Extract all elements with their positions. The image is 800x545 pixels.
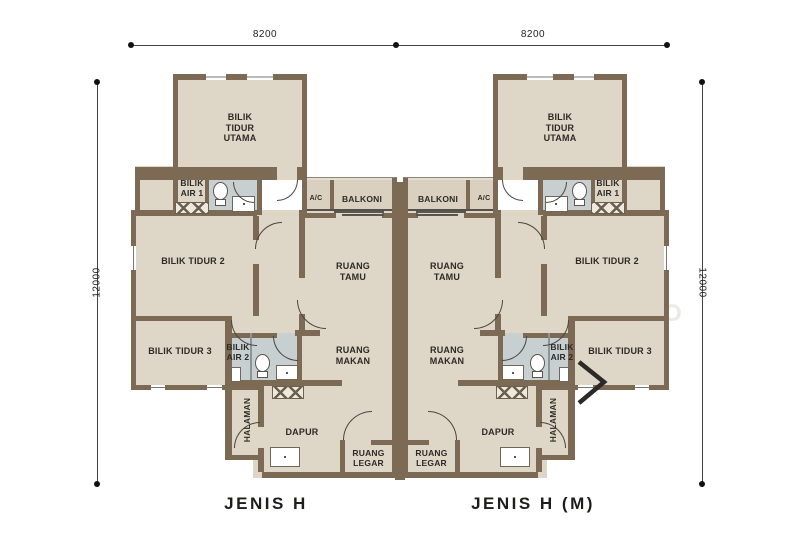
wall — [131, 210, 136, 390]
wall — [258, 460, 264, 472]
wall — [302, 74, 307, 213]
dimension-dot — [128, 42, 134, 48]
kitchen-sink-icon — [500, 447, 530, 467]
toilet-tank-icon — [257, 371, 268, 378]
room-label-master-bedroom: BILIK TIDUR UTAMA — [510, 112, 610, 144]
vent-hatch — [272, 386, 304, 399]
wall — [536, 385, 542, 427]
wall — [493, 74, 498, 213]
wall — [131, 316, 231, 321]
room-label-master-bedroom: BILIK TIDUR UTAMA — [190, 112, 290, 144]
toilet-icon — [530, 354, 545, 372]
dimension-width-left: 8200 — [215, 29, 315, 40]
room-label-yard: HALAMAN — [548, 390, 558, 450]
wall — [173, 74, 178, 167]
unit-caption-left: JENIS H — [166, 494, 366, 514]
wall — [538, 455, 575, 460]
room-label-bathroom1: BILIK AIR 1 — [175, 178, 209, 198]
top-dimension-line — [131, 45, 667, 46]
entrance-arrow-icon — [576, 359, 608, 406]
wall — [392, 178, 397, 478]
wall — [536, 460, 542, 472]
toilet-icon — [255, 354, 270, 372]
door-arc — [502, 180, 523, 201]
sink-icon — [276, 365, 298, 380]
room-label-foyer: RUANG LEGAR — [403, 448, 460, 468]
room-label-living-room: RUANG TAMU — [303, 261, 403, 282]
vent-hatch — [175, 202, 209, 214]
kitchen-sink-icon — [270, 447, 300, 467]
wall — [135, 167, 140, 215]
room-label-yard: HALAMAN — [242, 390, 252, 450]
wall — [257, 180, 262, 215]
dimension-dot — [699, 79, 705, 85]
wall — [660, 167, 665, 215]
room-label-balcony: BALKONI — [406, 194, 470, 204]
room-label-kitchen: DAPUR — [458, 427, 538, 438]
wall — [297, 167, 307, 180]
window — [527, 74, 553, 80]
room-label-kitchen: DAPUR — [262, 427, 342, 438]
room-label-living-room: RUANG TAMU — [397, 261, 497, 282]
wall — [569, 316, 669, 321]
dimension-dot — [94, 481, 100, 487]
toilet-icon — [572, 182, 587, 200]
toilet-tank-icon — [574, 199, 585, 206]
sliding-door — [416, 211, 466, 213]
toilet-icon — [213, 182, 228, 200]
vent-hatch — [496, 386, 528, 399]
dimension-height-right: 12000 — [697, 233, 708, 333]
wall — [258, 385, 264, 427]
wall — [664, 210, 669, 390]
room-label-foyer: RUANG LEGAR — [340, 448, 397, 468]
floor-plan-unit-left: BILIK TIDUR UTAMA BILIK AIR 1 BILIK TIDU… — [131, 70, 397, 480]
sliding-door — [334, 211, 384, 213]
room-label-ac: A/C — [470, 195, 498, 203]
door-arc — [277, 180, 298, 201]
unit-caption-right: JENIS H (M) — [433, 494, 633, 514]
dimension-width-right: 8200 — [483, 29, 583, 40]
floor-plan-unit-right: BILIK TIDUR UTAMA BILIK AIR 1 BILIK TIDU… — [403, 70, 669, 480]
dimension-height-left: 12000 — [92, 233, 103, 333]
room-label-bathroom2: BILIK AIR 2 — [224, 342, 252, 362]
room-label-dining-room: RUANG MAKAN — [397, 345, 497, 366]
wall — [253, 264, 259, 316]
water-heater-icon — [559, 367, 569, 382]
window — [664, 246, 669, 270]
window — [206, 74, 226, 80]
window — [131, 246, 136, 270]
window — [247, 74, 273, 80]
wall — [173, 74, 307, 80]
window — [574, 74, 594, 80]
room-label-balcony: BALKONI — [330, 194, 394, 204]
toilet-tank-icon — [215, 199, 226, 206]
water-heater-icon — [231, 367, 241, 382]
wall — [493, 74, 627, 80]
room-label-bathroom2: BILIK AIR 2 — [548, 342, 576, 362]
room-label-bedroom3: BILIK TIDUR 3 — [131, 346, 229, 357]
vent-hatch — [591, 202, 625, 214]
wall — [262, 472, 397, 478]
toilet-tank-icon — [532, 371, 543, 378]
wall — [302, 213, 336, 218]
dimension-dot — [94, 79, 100, 85]
dimension-dot — [664, 42, 670, 48]
dimension-dot — [699, 481, 705, 487]
room-label-ac: A/C — [302, 195, 330, 203]
wall — [403, 178, 408, 478]
wall — [622, 74, 627, 167]
sliding-door — [416, 214, 458, 216]
room-label-bathroom1: BILIK AIR 1 — [591, 178, 625, 198]
wall — [464, 213, 498, 218]
window — [151, 385, 165, 390]
window — [207, 385, 222, 390]
room-label-bedroom3: BILIK TIDUR 3 — [571, 346, 669, 357]
wall — [403, 472, 538, 478]
sink-icon — [502, 365, 524, 380]
room-label-bedroom2: BILIK TIDUR 2 — [143, 256, 243, 267]
wall — [541, 264, 547, 316]
dimension-dot — [393, 42, 399, 48]
room-label-bedroom2: BILIK TIDUR 2 — [557, 256, 657, 267]
wall — [225, 455, 262, 460]
room-label-dining-room: RUANG MAKAN — [303, 345, 403, 366]
sliding-door — [342, 214, 384, 216]
window — [635, 385, 649, 390]
wall — [493, 167, 503, 180]
